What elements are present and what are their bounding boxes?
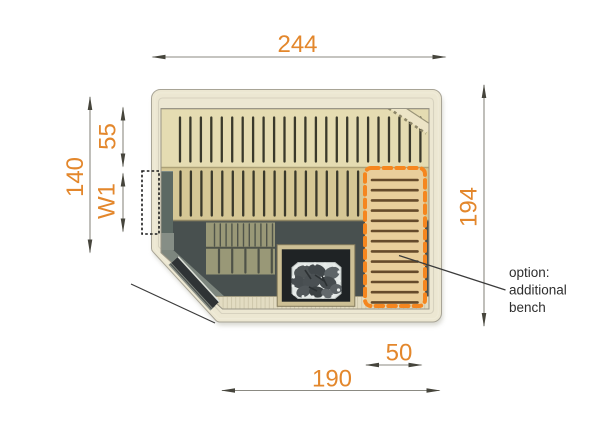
- svg-text:option:: option:: [509, 265, 550, 280]
- svg-text:140: 140: [62, 157, 89, 197]
- svg-text:190: 190: [312, 366, 352, 393]
- svg-text:W1: W1: [94, 183, 121, 219]
- svg-text:50: 50: [386, 340, 413, 367]
- svg-text:194: 194: [456, 187, 483, 227]
- svg-text:55: 55: [95, 123, 122, 150]
- svg-text:additional: additional: [509, 283, 567, 298]
- svg-text:244: 244: [277, 31, 317, 58]
- svg-text:bench: bench: [509, 300, 546, 315]
